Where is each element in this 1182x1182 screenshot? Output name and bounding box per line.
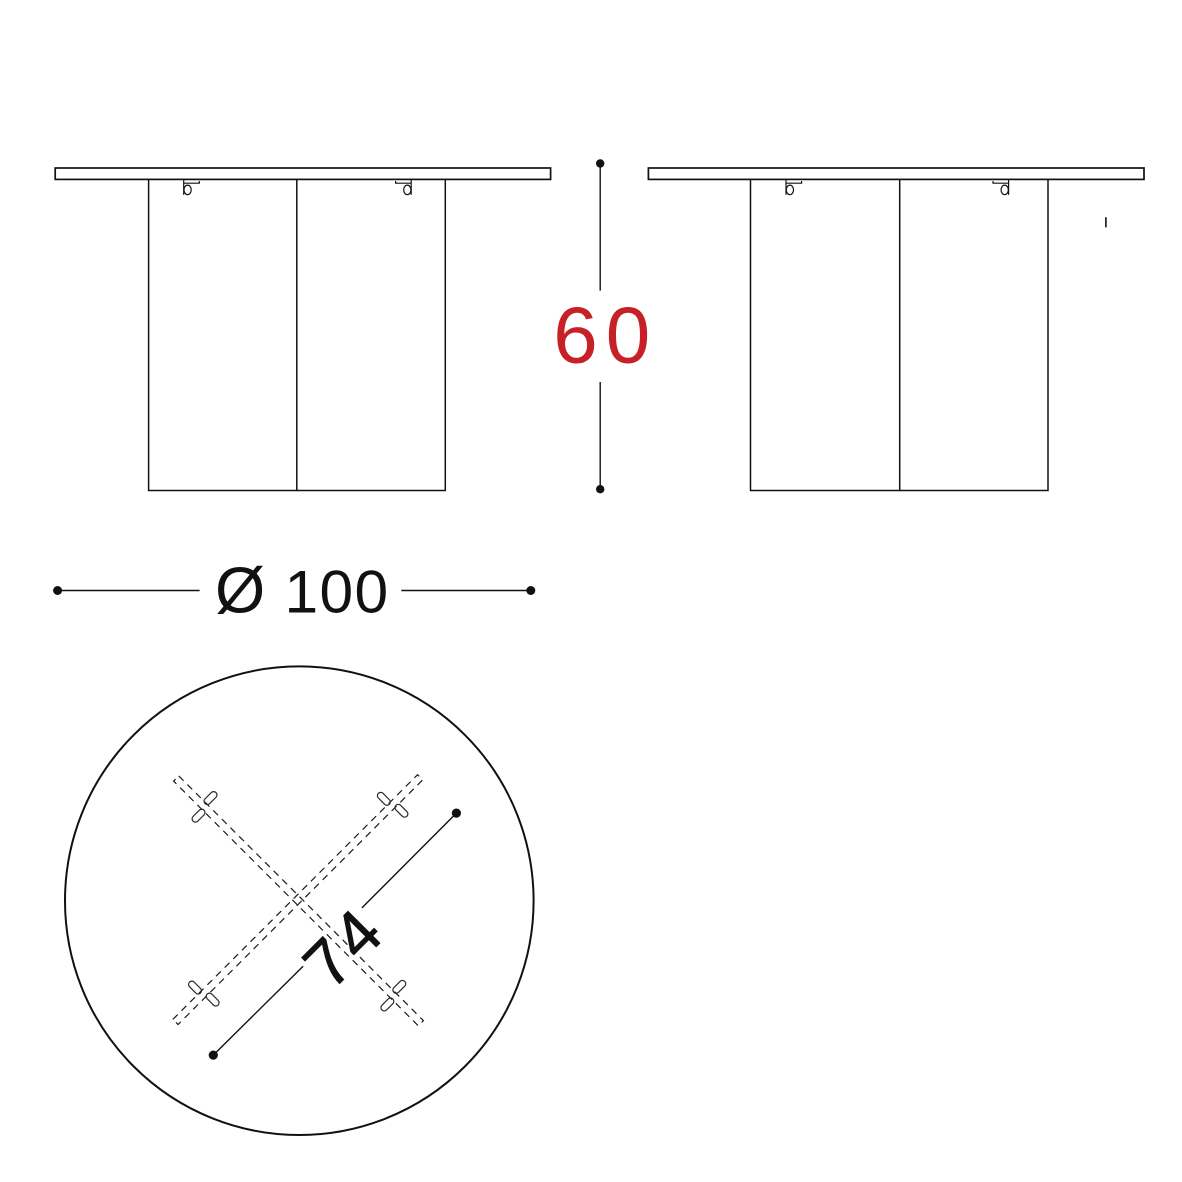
svg-text:60: 60 [553,291,658,380]
svg-text:74: 74 [289,892,399,1002]
svg-text:Ø 100: Ø 100 [215,555,389,627]
